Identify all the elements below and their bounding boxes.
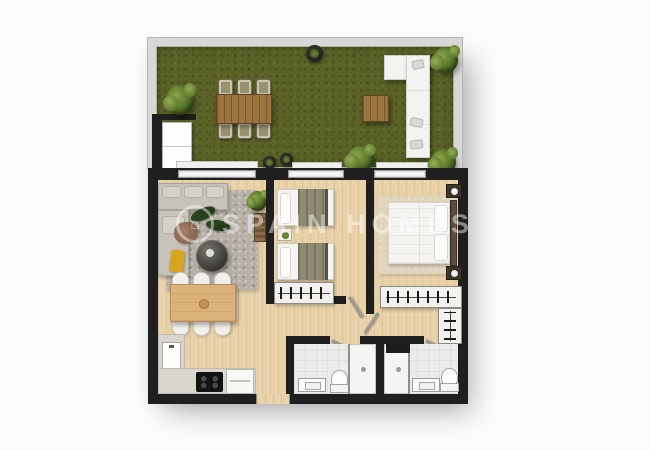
exterior-wall-bottom-left (148, 394, 256, 404)
vanity-sink (298, 378, 326, 392)
wall-shelf (254, 213, 266, 242)
sofa-cushion (206, 186, 224, 198)
floor-plan-canvas: ⌂ SPAIN HOMES (0, 0, 650, 450)
nightstand-plant (282, 232, 289, 239)
bathroom-niche (386, 340, 410, 353)
toilet (330, 370, 347, 393)
toilet-tank (440, 383, 459, 392)
wardrobe-hangers (444, 312, 456, 341)
toilet-tank (330, 384, 349, 393)
bed-pillow (280, 247, 291, 278)
bedroom2-wardrobe-vertical (438, 308, 462, 344)
sofa-seam (407, 90, 431, 91)
shower (348, 344, 376, 394)
outdoor-chair (237, 122, 252, 139)
bed-pillow (434, 205, 448, 232)
sofa-cushion (184, 186, 203, 198)
lamp (451, 270, 458, 277)
sofa-cushion (162, 186, 181, 198)
nightstand (277, 228, 292, 241)
toilet (440, 368, 457, 392)
bed-headboard (450, 200, 457, 266)
bed-blanket (298, 189, 328, 226)
bed-pillow (434, 234, 448, 261)
closet-divider (163, 146, 191, 147)
wardrobe-hangers (280, 287, 329, 298)
bedroom1-wardrobe (274, 282, 334, 304)
single-bed-1 (277, 189, 334, 226)
partition-wall-living-bedroom1 (266, 180, 274, 300)
bedroom1-window (288, 170, 344, 178)
living-room-window (178, 170, 256, 178)
exterior-wall-bottom-right (290, 394, 468, 404)
terrace-wall-segment (152, 114, 162, 172)
dining-table (170, 284, 236, 322)
terrace-plant (166, 85, 194, 115)
shower-glass (348, 344, 350, 394)
terrace-plant (433, 47, 458, 73)
outdoor-dining-table (216, 94, 272, 124)
indoor-plant (248, 191, 267, 211)
bedroom2-window (374, 170, 426, 178)
round-coffee-table (196, 240, 228, 272)
bathroom-divider-wall (376, 336, 384, 394)
single-bed-2 (277, 243, 334, 280)
exterior-wall-left (148, 168, 158, 404)
sink-basin (305, 382, 322, 390)
cooktop (196, 372, 223, 392)
entrance-opening (256, 394, 290, 404)
vanity-sink (412, 378, 440, 392)
outdoor-coffee-table (362, 95, 389, 122)
sink-basin (419, 382, 436, 390)
lamp (451, 188, 458, 195)
kitchen-appliance (226, 369, 254, 394)
kitchen-sink (162, 342, 181, 370)
outdoor-chair (218, 122, 233, 139)
yellow-throw (169, 249, 185, 272)
bedroom2-wardrobe-horizontal (380, 286, 462, 308)
outdoor-sofa-cushion (409, 139, 423, 150)
bed-pillow (280, 193, 291, 224)
duvet-crease (419, 203, 420, 265)
nightstand-with-lamp (446, 266, 462, 280)
partition-wall-bedroom1-bedroom2 (366, 180, 374, 314)
bathroom1-left-wall (286, 336, 294, 394)
terrace-round-planter (306, 45, 323, 62)
nightstand-with-lamp (446, 184, 462, 198)
wardrobe-hangers (387, 291, 454, 302)
outdoor-chair (256, 122, 271, 139)
bed-blanket (298, 243, 328, 280)
